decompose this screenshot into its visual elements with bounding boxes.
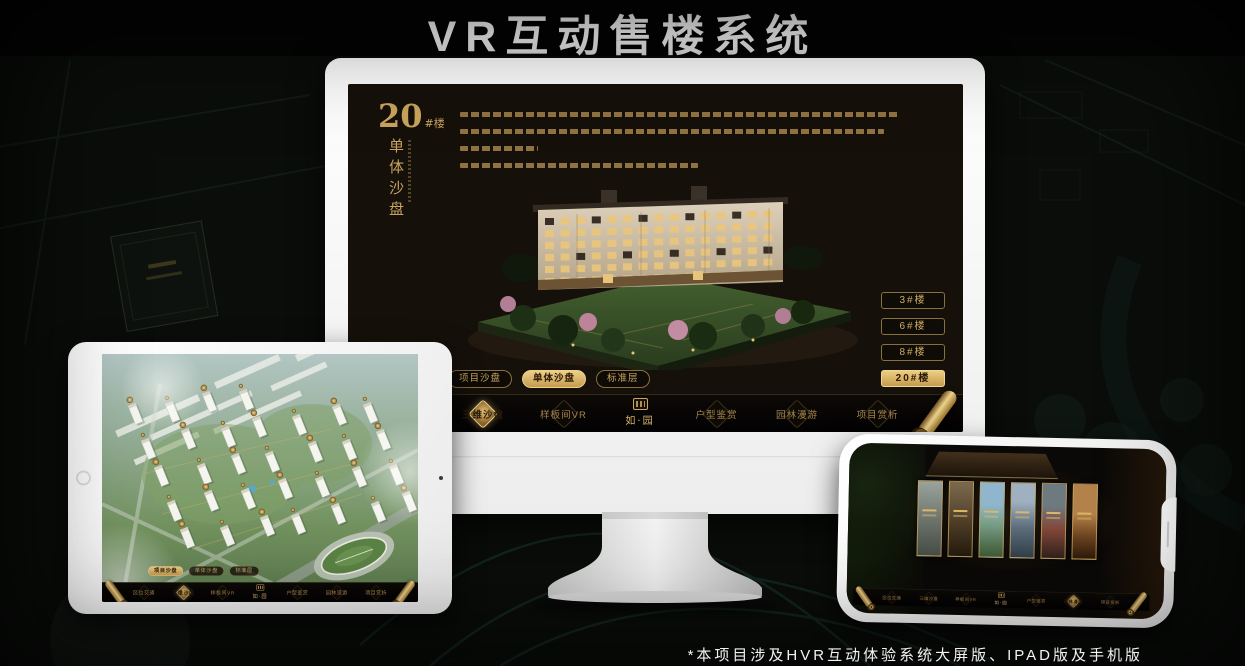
gallery-panel[interactable] xyxy=(947,481,974,558)
menu-item[interactable]: 园林漫游 xyxy=(318,584,355,601)
view-tab[interactable]: 标准层 xyxy=(596,370,650,388)
brand-logo: 如·园 xyxy=(243,584,276,600)
aerial-masterplan-render xyxy=(102,354,418,602)
interior-ceiling xyxy=(925,451,1059,479)
gold-seal-icon xyxy=(256,584,264,590)
menu-group-right: 户型鉴赏园林漫游项目赏析 xyxy=(1015,593,1131,610)
subtitle-english-deco xyxy=(408,140,411,204)
home-button-icon[interactable] xyxy=(76,471,91,486)
camera-icon xyxy=(439,476,443,480)
gallery-panel[interactable] xyxy=(916,480,943,557)
gold-scroll-icon xyxy=(916,387,960,432)
menu-item[interactable]: 户型鉴赏 xyxy=(279,584,316,601)
block-suffix: #楼 xyxy=(425,117,445,130)
menu-item[interactable]: 三维沙盘 xyxy=(447,398,519,430)
floor-button[interactable]: 8#楼 xyxy=(881,344,945,361)
menu-item[interactable]: 项目赏析 xyxy=(357,584,394,601)
view-tabs: 项目沙盘单体沙盘标准层 xyxy=(448,370,650,388)
menu-item[interactable]: 项目赏析 xyxy=(842,398,914,430)
brand-logo: 如·园 xyxy=(608,398,672,429)
gallery-panel[interactable] xyxy=(1009,482,1036,559)
block-number: 20 xyxy=(378,97,423,135)
floor-button[interactable]: 3#楼 xyxy=(881,292,945,309)
view-tab[interactable]: 单体沙盘 xyxy=(189,566,224,576)
menu-item[interactable]: 园林漫游 xyxy=(761,398,833,430)
brand-name: 如·园 xyxy=(252,594,267,600)
block-headline: 20#楼 xyxy=(378,100,445,132)
menu-item[interactable]: 样板间VR xyxy=(528,398,600,430)
monitor-stand xyxy=(540,512,770,608)
gold-seal-icon xyxy=(998,593,1005,599)
gold-scroll-icon xyxy=(393,579,416,602)
menu-item[interactable]: 户型鉴赏 xyxy=(1020,593,1053,608)
tablet-screen: 项目沙盘单体沙盘标准层 区位交通三维沙盘样板间VR 如·园 户型鉴赏园林漫游项目… xyxy=(102,354,418,602)
promo-canvas: VR互动售楼系统 20#楼 单体沙盘 xyxy=(0,0,1245,666)
phone-device: 区位交通三维沙盘样板间VR 如·园 户型鉴赏园林漫游项目赏析 xyxy=(836,433,1177,628)
building-3d-render xyxy=(453,140,873,370)
tablet-device: 项目沙盘单体沙盘标准层 区位交通三维沙盘样板间VR 如·园 户型鉴赏园林漫游项目… xyxy=(68,342,452,614)
brand-name: 如·园 xyxy=(625,416,654,427)
gold-seal-icon xyxy=(633,398,648,410)
menu-item[interactable]: 样板间VR xyxy=(204,584,241,601)
menu-group-right: 户型鉴赏园林漫游项目赏析 xyxy=(672,398,922,430)
block-subtitle: 单体沙盘 xyxy=(386,138,407,222)
menu-item[interactable]: 区位交通 xyxy=(876,590,909,605)
floor-selector: 3#楼6#楼8#楼20#楼 xyxy=(881,292,945,387)
gallery-panel[interactable] xyxy=(1040,483,1067,560)
menu-item[interactable]: 区位交通 xyxy=(125,584,162,601)
phone-notch xyxy=(1160,497,1177,571)
scene-gallery xyxy=(916,480,1098,560)
view-tab[interactable]: 单体沙盘 xyxy=(522,370,586,388)
description-line xyxy=(460,112,900,117)
brand-name: 如·园 xyxy=(994,601,1007,606)
menu-item[interactable]: 三维沙盘 xyxy=(913,591,946,606)
phone-screen: 区位交通三维沙盘样板间VR 如·园 户型鉴赏园林漫游项目赏析 xyxy=(846,443,1166,620)
menu-item[interactable]: 项目赏析 xyxy=(1094,594,1127,609)
menu-item[interactable]: 户型鉴赏 xyxy=(681,398,753,430)
menu-group-left: 区位交通三维沙盘样板间VR xyxy=(123,584,243,601)
gallery-panel[interactable] xyxy=(1071,483,1098,560)
view-tab[interactable]: 项目沙盘 xyxy=(148,566,183,576)
menu-item[interactable]: 三维沙盘 xyxy=(165,584,202,601)
main-menu-bar: 区位交通三维沙盘样板间VR 如·园 户型鉴赏园林漫游项目赏析 xyxy=(102,582,418,602)
menu-group-right: 户型鉴赏园林漫游项目赏析 xyxy=(277,584,397,601)
floor-button[interactable]: 20#楼 xyxy=(881,370,945,387)
menu-group-left: 区位交通三维沙盘样板间VR xyxy=(871,590,987,607)
view-tab[interactable]: 标准层 xyxy=(229,566,258,576)
view-tabs: 项目沙盘单体沙盘标准层 xyxy=(148,566,259,576)
description-line xyxy=(460,129,884,134)
tablet-menu-area: 区位交通三维沙盘样板间VR 如·园 户型鉴赏园林漫游项目赏析 xyxy=(102,582,418,602)
view-tab[interactable]: 项目沙盘 xyxy=(448,370,512,388)
brand-logo: 如·园 xyxy=(987,592,1016,607)
page-title: VR互动售楼系统 xyxy=(0,2,1245,64)
footnote: *本项目涉及HVR互动体验系统大屏版、IPAD版及手机版 xyxy=(688,644,1143,665)
gallery-panel[interactable] xyxy=(978,481,1005,558)
floor-button[interactable]: 6#楼 xyxy=(881,318,945,335)
menu-item[interactable]: 园林漫游 xyxy=(1057,594,1090,609)
menu-item[interactable]: 样板间VR xyxy=(950,591,983,606)
